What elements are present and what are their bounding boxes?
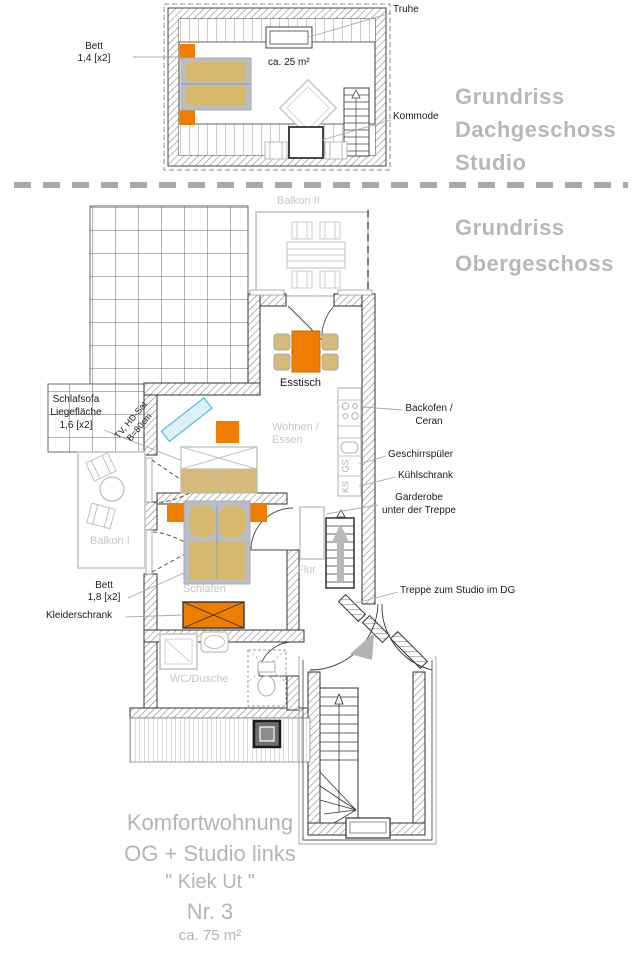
title-dg-line3: Studio (455, 146, 616, 179)
label-og-bett-line1: Bett (78, 580, 130, 592)
label-backofen: Backofen / Ceran (396, 402, 462, 428)
title-dg-line2: Dachgeschoss (455, 113, 616, 146)
label-wohnen-essen: Wohnen / Essen (272, 421, 332, 447)
label-studio-bett: Bett 1,4 [x2] (55, 41, 133, 65)
label-studio-bett-line2: 1,4 [x2] (55, 53, 133, 65)
nightstand (167, 503, 184, 522)
label-garderobe-line1: Garderobe (376, 491, 462, 504)
footer-line-3: " Kiek Ut " (60, 871, 360, 894)
up-arrow (337, 538, 344, 582)
kitchen-ks-label: KS (341, 481, 351, 493)
kitchen-sink (341, 442, 358, 453)
nightstand (250, 503, 267, 522)
label-wohnen-line2: Essen (272, 434, 332, 447)
kitchen-gs-label: GS (341, 459, 351, 472)
label-geschirrspueler: Geschirrspüler (388, 449, 453, 461)
label-schlafsofa-line3: 1,6 [x2] (40, 419, 112, 432)
label-garderobe: Garderobe unter der Treppe (376, 491, 462, 517)
balcony-chair (292, 271, 312, 288)
label-esstisch: Esstisch (280, 377, 321, 389)
title-og-line2: Obergeschoss (455, 246, 614, 282)
title-og-line1: Grundriss (455, 210, 614, 246)
stairs-to-studio (326, 510, 354, 588)
wc-toilet (248, 650, 286, 706)
couch-table (216, 421, 239, 443)
studio-kommode (289, 127, 323, 158)
shower (160, 634, 197, 669)
balcony-1 (78, 452, 145, 568)
label-balkon-2: Balkon II (277, 195, 320, 208)
footer-line-5: ca. 75 m² (60, 927, 360, 944)
label-wohnen-line1: Wohnen / (272, 421, 332, 434)
label-balkon-1: Balkon I (90, 535, 130, 548)
dining-chair (322, 354, 338, 370)
footer-line-1: Komfortwohnung (60, 810, 360, 836)
label-kuehlschrank: Kühlschrank (398, 470, 453, 482)
floorplan-page: GS KS (0, 0, 640, 962)
studio-chair (265, 142, 287, 159)
label-kommode: Kommode (393, 111, 439, 123)
label-schlafen: Schlafen (183, 583, 226, 596)
label-schlafsofa: Schlafsofa Liegefläche 1,6 [x2] (40, 393, 112, 432)
balcony-chair (320, 271, 340, 288)
studio-stairs (344, 88, 369, 156)
sofa-bed (181, 447, 257, 493)
nightstand (180, 44, 195, 59)
washbasin (201, 632, 228, 652)
label-og-bett-line2: 1,8 [x2] (78, 592, 130, 604)
balcony-2 (256, 210, 368, 298)
dining-table-group (274, 331, 338, 372)
label-og-bett: Bett 1,8 [x2] (78, 580, 130, 604)
label-garderobe-line2: unter der Treppe (376, 504, 462, 517)
footer-line-4: Nr. 3 (60, 899, 360, 925)
title-dachgeschoss: Grundriss Dachgeschoss Studio (455, 80, 616, 179)
nightstand (180, 110, 195, 125)
studio-chest-truhe (266, 27, 312, 48)
roof-grid-upper (90, 206, 248, 384)
label-schlafsofa-line2: Liegefläche (40, 406, 112, 419)
angled-wall (391, 632, 428, 669)
studio-plan (133, 4, 391, 170)
kitchen (338, 388, 361, 496)
og-plan: GS KS (48, 206, 436, 844)
dining-chair (322, 334, 338, 350)
balcony-chair (320, 222, 340, 239)
label-studio-bett-line1: Bett (55, 41, 133, 53)
label-studio-area: ca. 25 m² (268, 57, 310, 69)
balcony-chair (292, 222, 312, 239)
label-backofen-line2: Ceran (396, 415, 462, 428)
label-treppe-zum-studio: Treppe zum Studio im DG (400, 585, 515, 597)
roof-stripe-band (130, 718, 310, 762)
dining-table (292, 331, 320, 372)
label-schlafsofa-line1: Schlafsofa (40, 393, 112, 406)
dining-chair (274, 334, 290, 350)
footer-line-2: OG + Studio links (60, 841, 360, 867)
wardrobe (183, 602, 244, 628)
balcony-round-table (100, 477, 124, 501)
entry-door-post (339, 595, 366, 622)
title-dg-line1: Grundriss (455, 80, 616, 113)
label-wc-dusche: WC/Dusche (170, 673, 229, 686)
label-flur: Flur (297, 564, 316, 577)
tv (161, 398, 212, 441)
chimney (254, 721, 280, 747)
studio-chair (325, 142, 347, 159)
label-truhe: Truhe (393, 4, 419, 16)
label-backofen-line1: Backofen / (396, 402, 462, 415)
dining-chair (274, 354, 290, 370)
entry-direction-arrow (350, 633, 374, 660)
title-obergeschoss: Grundriss Obergeschoss (455, 210, 614, 282)
garderobe-closet (300, 507, 324, 559)
label-kleiderschrank: Kleiderschrank (46, 610, 112, 622)
